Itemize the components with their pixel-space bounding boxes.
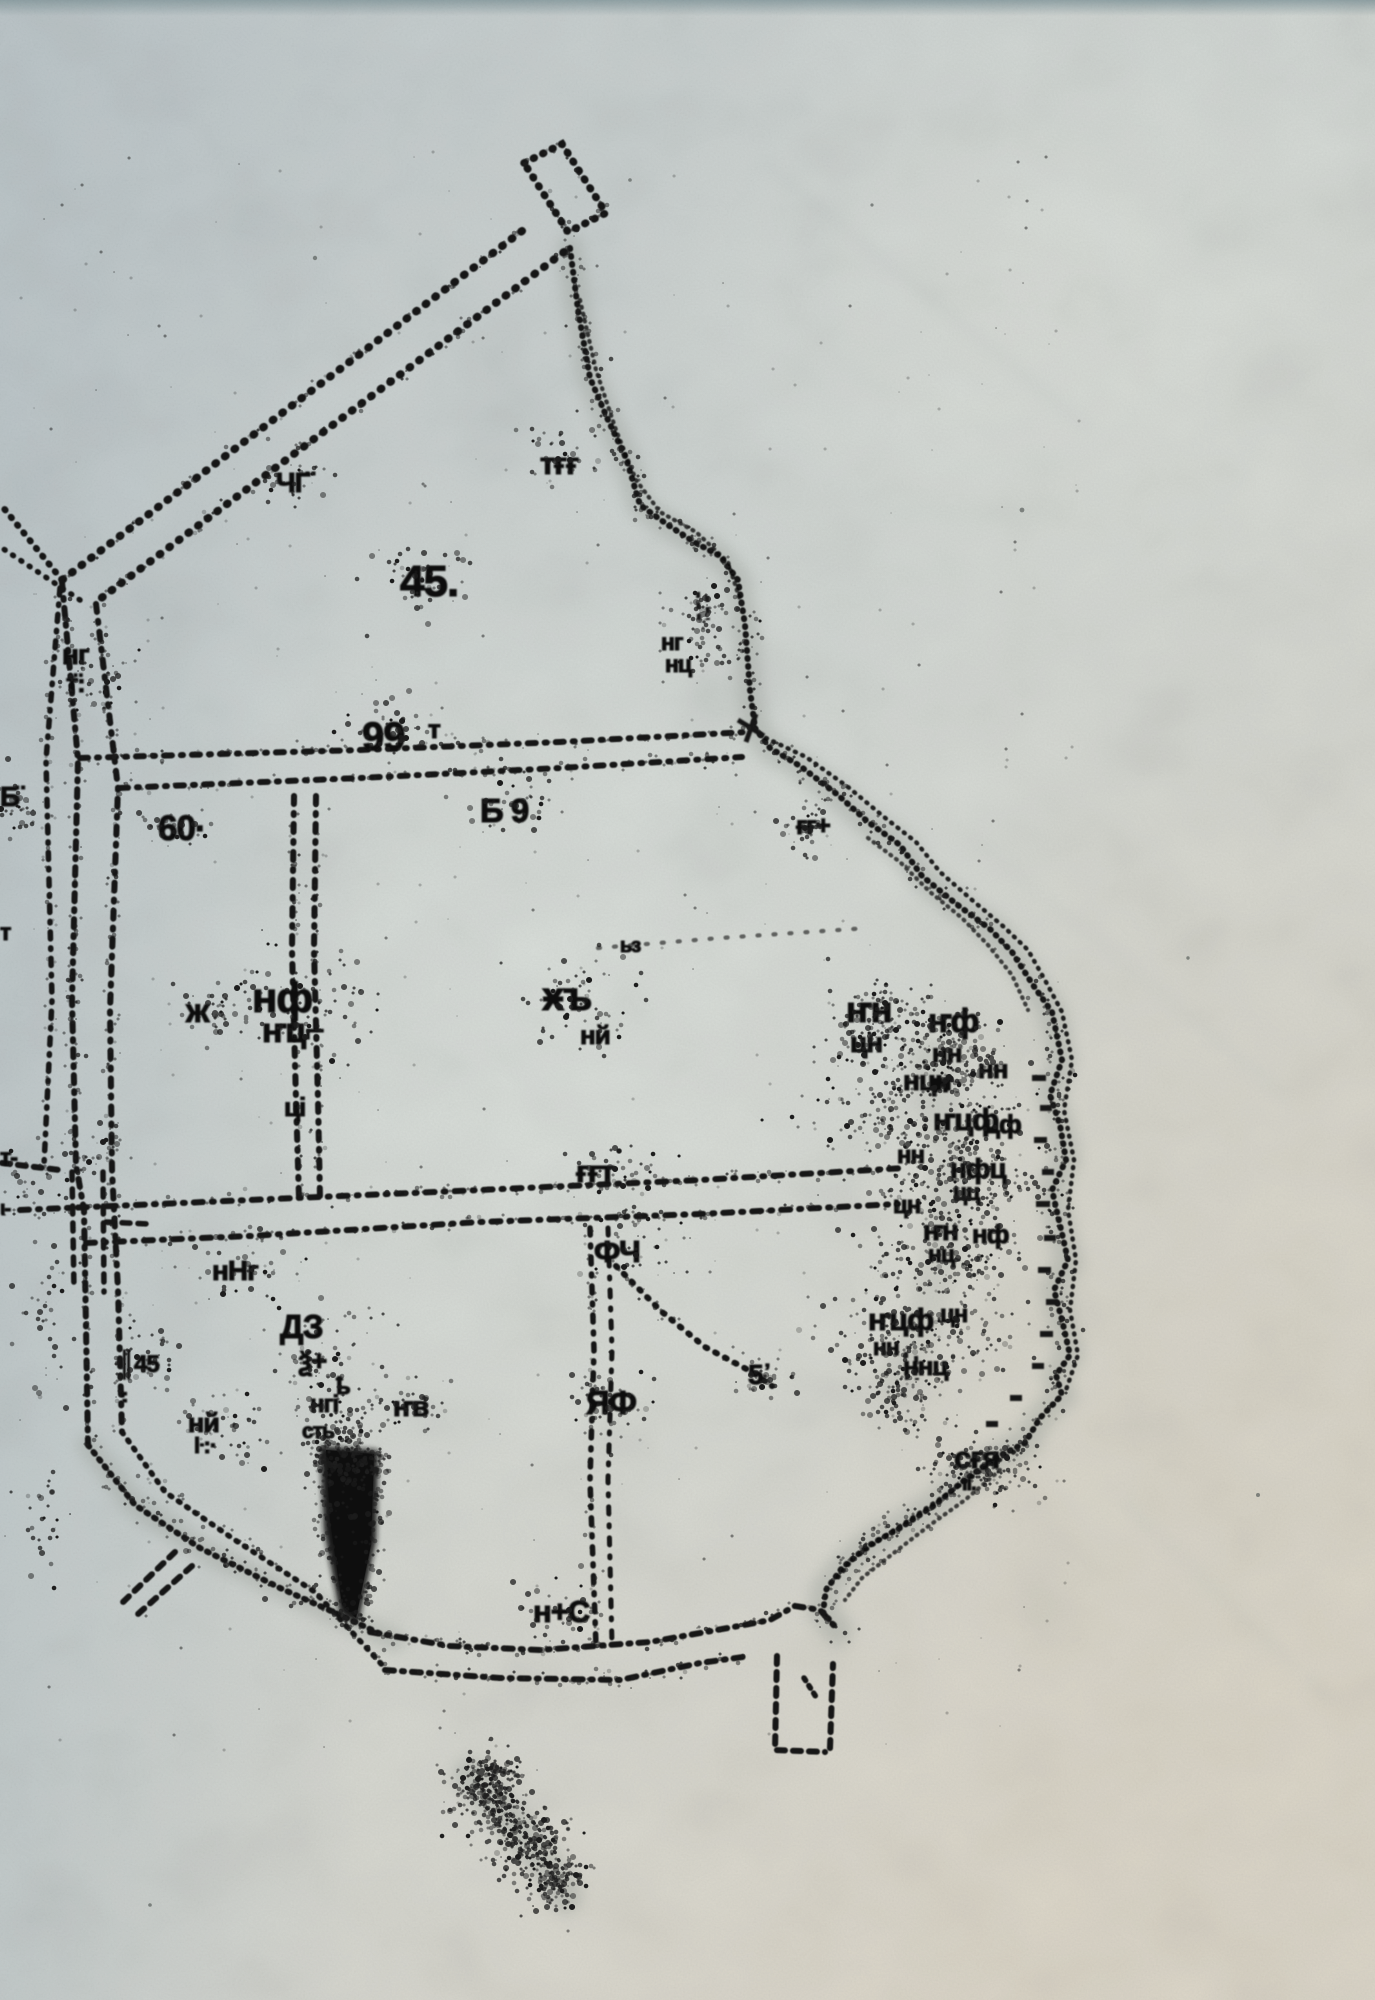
svg-text:ФЧ: ФЧ (594, 1234, 640, 1269)
svg-text:т: т (0, 919, 11, 945)
svg-text:нг: нг (62, 639, 89, 670)
svg-text:60·: 60· (158, 809, 206, 848)
svg-text:ι-: ι- (0, 1198, 11, 1220)
svg-text:т: т (428, 714, 441, 744)
svg-text:нй: нй (580, 1020, 610, 1050)
svg-text:нц: нц (665, 651, 692, 677)
svg-text:ДЗ: ДЗ (280, 1308, 323, 1345)
svg-text:т̈:: т̈: (66, 670, 85, 698)
svg-text:ЯФ: ЯФ (586, 1384, 637, 1421)
svg-text:ҥцф: ҥцф (868, 1302, 933, 1337)
svg-text:ŀ:·: ŀ:· (194, 1433, 216, 1458)
svg-text:ҥф: ҥф (928, 1002, 979, 1039)
svg-text:т-: т- (0, 1144, 17, 1170)
svg-text:ж: ж (185, 992, 210, 1029)
